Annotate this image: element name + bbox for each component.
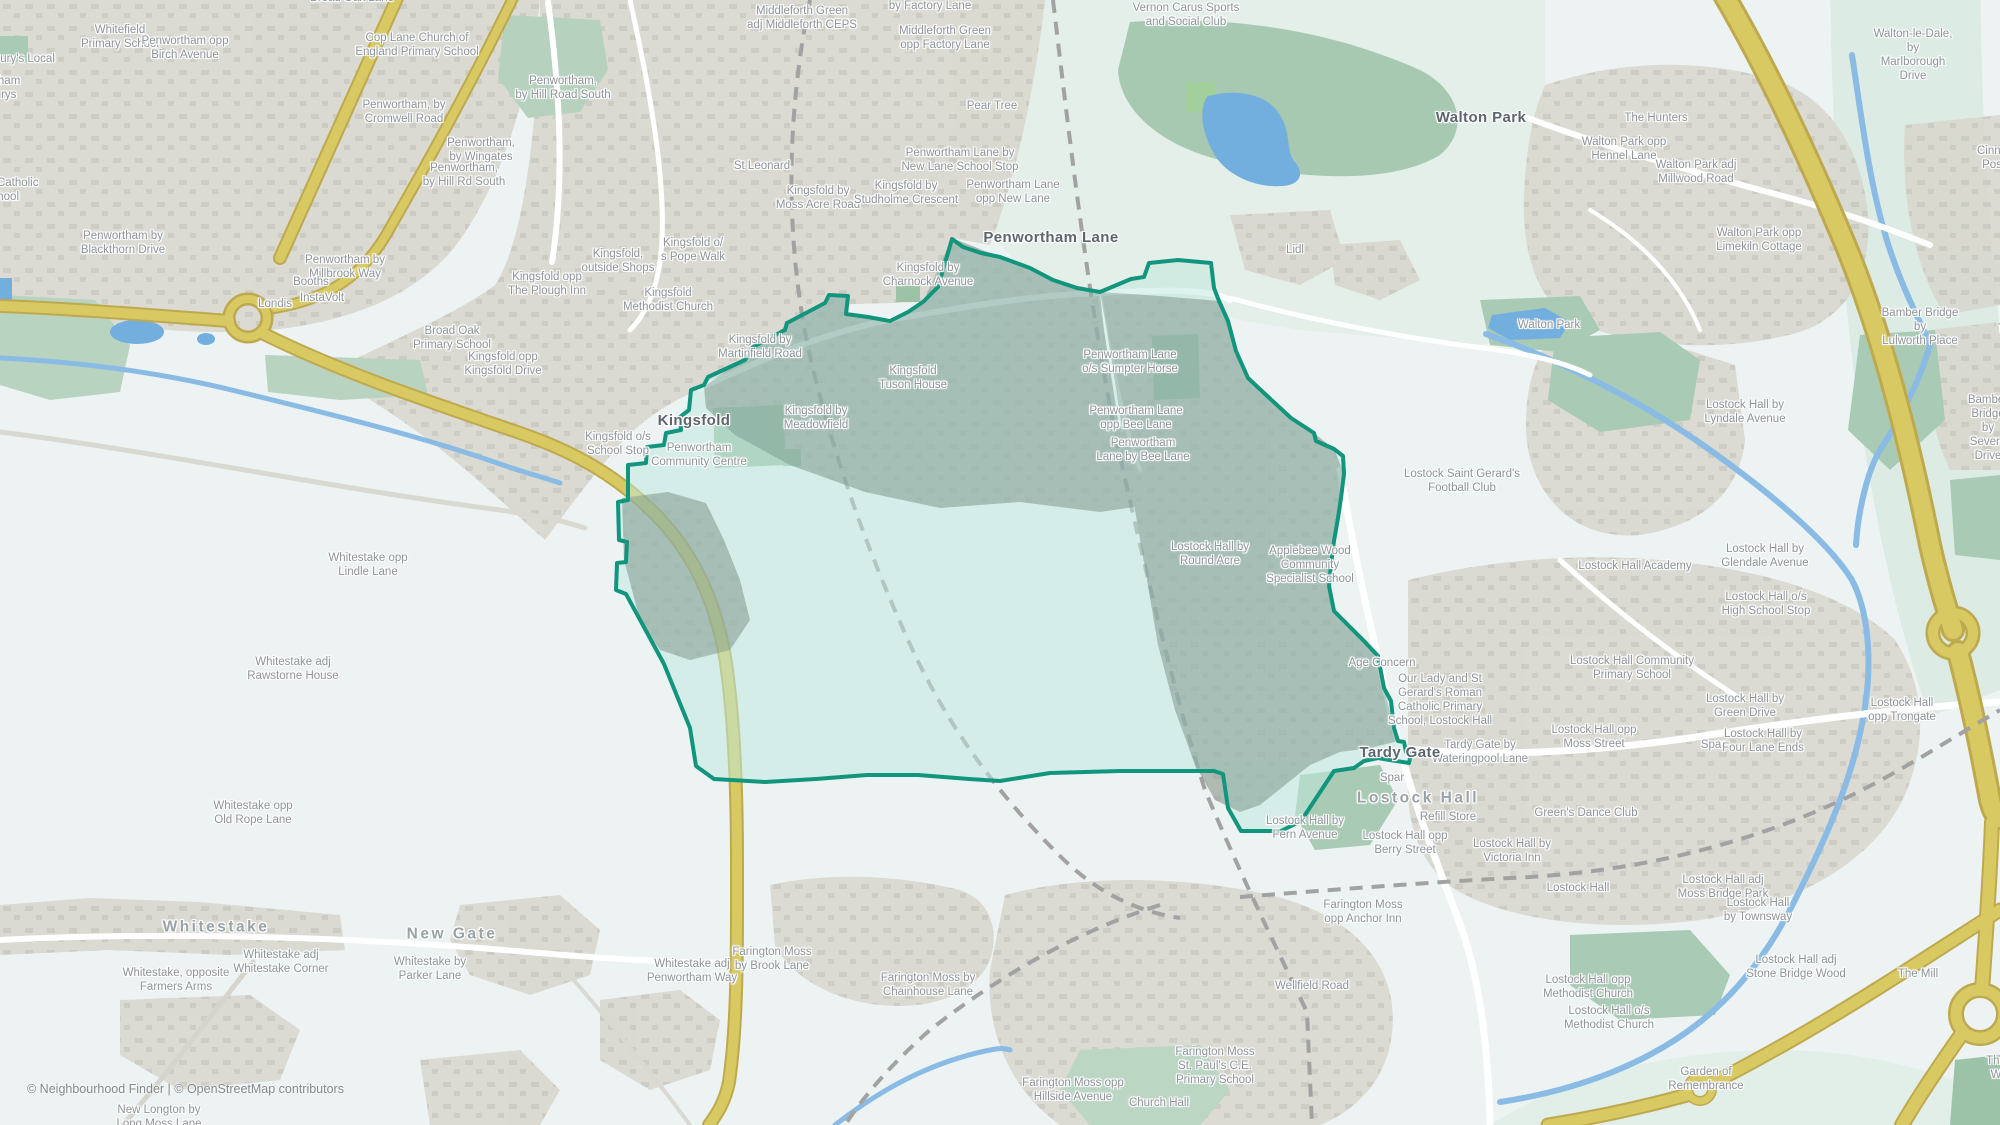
map-attribution: © Neighbourhood Finder | © OpenStreetMap…: [27, 1082, 344, 1096]
map-base-layer: [0, 0, 2000, 1125]
map-canvas[interactable]: Whitefield Primary SchoolPenwortham opp …: [0, 0, 2000, 1125]
